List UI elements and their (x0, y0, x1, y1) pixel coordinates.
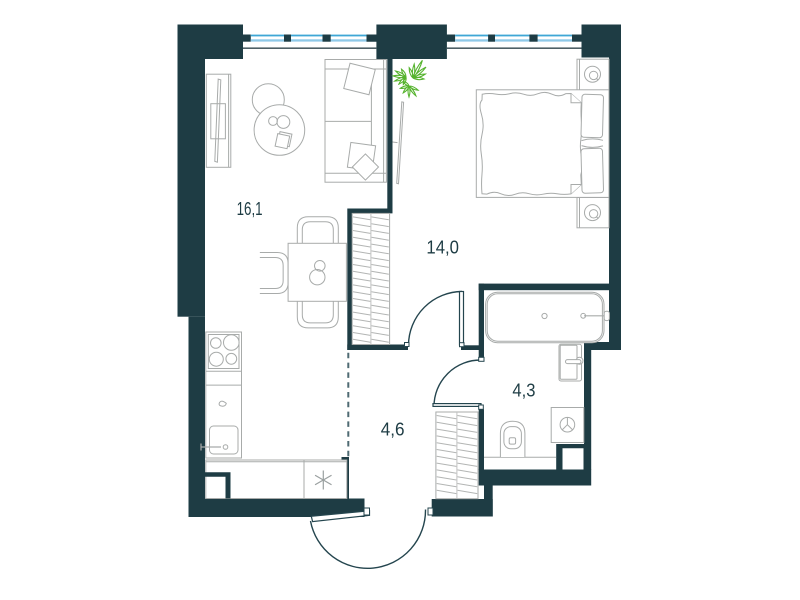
svg-text:16,1: 16,1 (237, 198, 263, 219)
svg-text:4,6: 4,6 (381, 418, 405, 439)
svg-text:14,0: 14,0 (426, 236, 459, 257)
svg-text:4,3: 4,3 (512, 380, 535, 401)
